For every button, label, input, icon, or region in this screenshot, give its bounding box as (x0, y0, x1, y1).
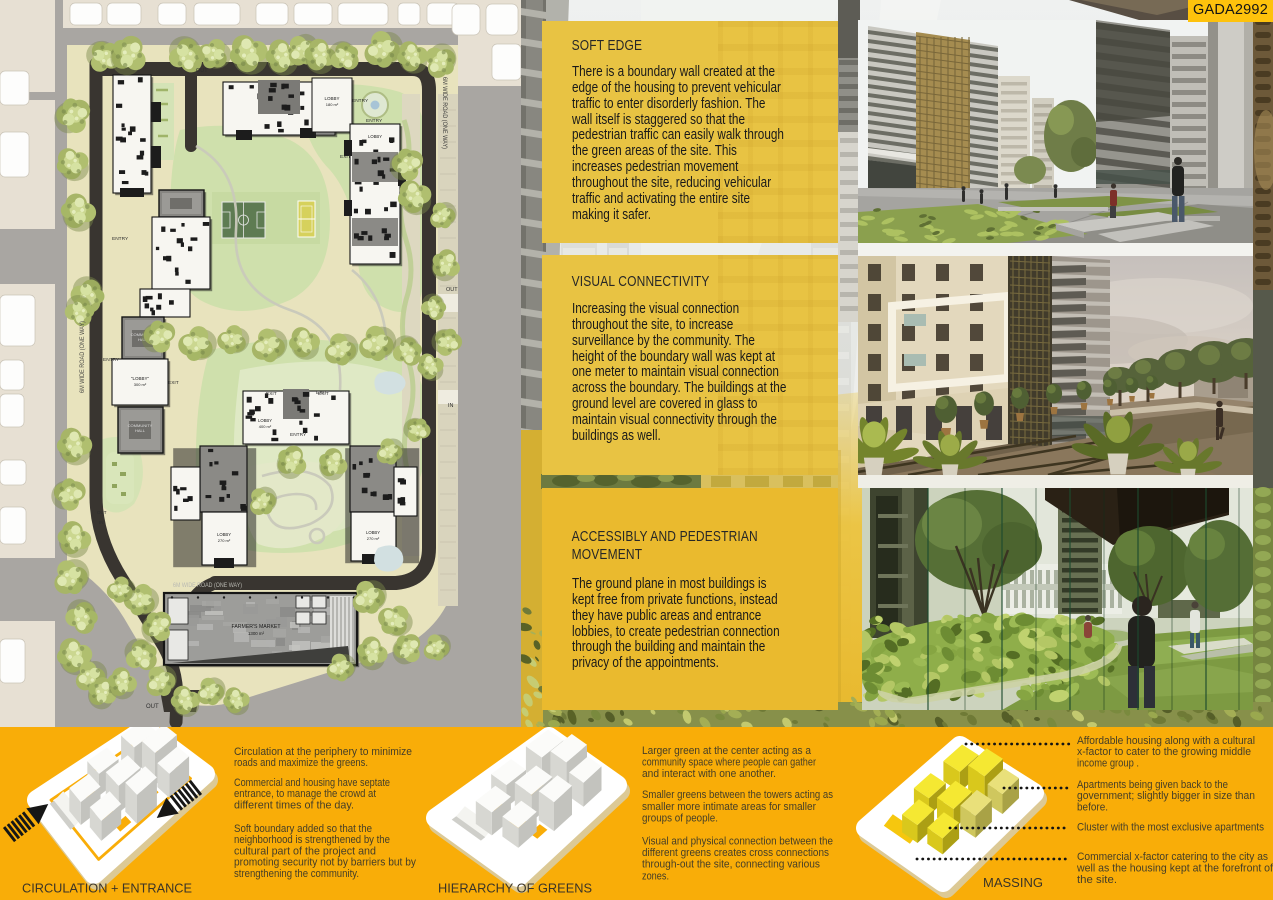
svg-text:zones.: zones. (642, 870, 669, 882)
svg-text:HIERARCHY OF GREENS: HIERARCHY OF GREENS (438, 881, 592, 896)
svg-text:LOBBY: LOBBY (324, 96, 339, 101)
svg-text:LOBBY: LOBBY (258, 418, 272, 423)
svg-text:LOBBY: LOBBY (217, 532, 231, 537)
svg-text:EXIT: EXIT (168, 380, 179, 386)
svg-text:CIRCULATION + ENTRANCE: CIRCULATION + ENTRANCE (22, 881, 192, 896)
svg-text:Circulation at the periphery t: Circulation at the periphery to minimize (234, 746, 412, 758)
svg-text:and interact with one another.: and interact with one another. (642, 768, 776, 780)
svg-text:OUT: OUT (146, 704, 159, 710)
svg-text:neighborhood is strengthened b: neighborhood is strengthened by the (234, 834, 390, 846)
svg-text:groups of people.: groups of people. (642, 812, 718, 824)
svg-text:well as the housing kept at th: well as the housing kept at the forefron… (1076, 863, 1273, 875)
svg-text:Apartments being given back to: Apartments being given back to the (1077, 779, 1228, 791)
svg-text:x-factor to cater to the growi: x-factor to cater to the growing middle (1077, 746, 1251, 758)
svg-text:before.: before. (1077, 801, 1108, 813)
svg-text:300 m²: 300 m² (134, 382, 147, 387)
svg-text:strengthening the community.: strengthening the community. (234, 868, 359, 880)
svg-text:270 m²: 270 m² (218, 538, 231, 543)
svg-text:through-out the site, connecti: through-out the site, connecting various (642, 859, 820, 871)
svg-text:HALL: HALL (135, 428, 146, 433)
svg-text:Commercial x-factor catering t: Commercial x-factor catering to the city… (1077, 851, 1268, 863)
svg-text:Soft boundary added so that th: Soft boundary added so that the (234, 823, 372, 835)
svg-text:1300 m²: 1300 m² (248, 631, 265, 636)
svg-text:different greens creates cross: different greens creates cross connectio… (642, 847, 829, 859)
svg-text:180 m²: 180 m² (326, 102, 339, 107)
svg-text:400 m²: 400 m² (259, 424, 272, 429)
svg-text:promoting security not by barr: promoting security not by barriers but b… (234, 857, 416, 869)
svg-text:6M WIDE ROAD (ONE WAY): 6M WIDE ROAD (ONE WAY) (80, 321, 86, 393)
svg-text:EXIT: EXIT (340, 154, 351, 160)
svg-text:different times of the day.: different times of the day. (234, 800, 354, 812)
svg-text:IN: IN (99, 520, 104, 525)
svg-text:entrance, to manage the crowd: entrance, to manage the crowd at (234, 788, 376, 800)
svg-text:LOBBY: LOBBY (366, 530, 380, 535)
svg-text:OUT: OUT (97, 510, 107, 515)
svg-text:EXIT: EXIT (316, 390, 327, 396)
svg-text:IN: IN (448, 403, 454, 409)
svg-text:Smaller greens between the tow: Smaller greens between the towers acting… (642, 789, 833, 801)
svg-text:ENTRY: ENTRY (366, 118, 383, 124)
svg-text:270 m²: 270 m² (367, 536, 380, 541)
svg-text:LOBBY: LOBBY (368, 134, 382, 139)
svg-text:Cluster with the most exclusiv: Cluster with the most exclusive apartmen… (1077, 821, 1264, 833)
svg-text:Visual and physical connectio: Visual and physical connection between t… (642, 836, 833, 848)
svg-text:smaller more intimate areas fo: smaller more intimate areas for smaller (642, 801, 816, 813)
svg-text:cultural part of the project a: cultural part of the project and (234, 845, 376, 857)
svg-text:FARMER'S MARKET: FARMER'S MARKET (231, 624, 281, 630)
svg-text:roads and maximize the greens.: roads and maximize the greens. (234, 757, 368, 769)
svg-text:Larger green at the center act: Larger green at the center acting as a (642, 745, 812, 757)
svg-text:community space where people c: community space where people can gather (642, 757, 816, 769)
svg-text:ENTRY: ENTRY (352, 98, 369, 104)
svg-text:the site.: the site. (1077, 874, 1117, 886)
svg-text:OUT: OUT (446, 287, 458, 293)
svg-text:government; slightly bigger in: government; slightly bigger in size than (1077, 790, 1255, 802)
svg-text:Commercial and housing have se: Commercial and housing have septate (234, 777, 390, 789)
svg-text:OUT: OUT (196, 68, 208, 74)
svg-text:ENTRY: ENTRY (112, 236, 129, 242)
svg-text:ENTRY: ENTRY (290, 432, 307, 438)
svg-text:MASSING: MASSING (983, 875, 1043, 890)
svg-text:income group .: income group . (1077, 758, 1139, 770)
svg-text:Affordable housing along with: Affordable housing along with a cultural (1077, 735, 1255, 747)
svg-text:EXIT: EXIT (266, 391, 277, 397)
svg-text:"LOBBY": "LOBBY" (131, 376, 150, 381)
svg-text:ENTRY: ENTRY (103, 357, 120, 363)
svg-text:6M WIDE ROAD (ONE WAY): 6M WIDE ROAD (ONE WAY) (173, 583, 242, 589)
svg-text:6M WIDE ROAD (ONE WAY): 6M WIDE ROAD (ONE WAY) (441, 77, 447, 149)
